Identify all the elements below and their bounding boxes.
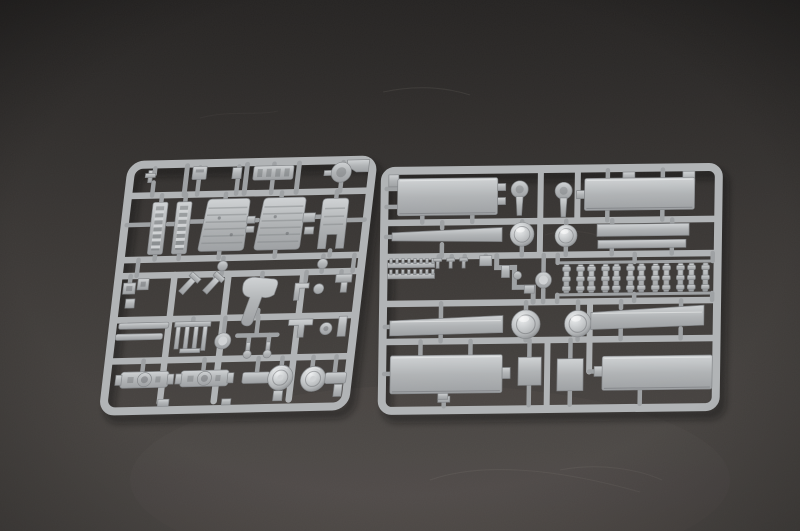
vignette: [0, 0, 800, 531]
sprue-photo-svg: [0, 0, 800, 531]
photo-model-kit-sprues: Two light-gray injection-molded plastic …: [0, 0, 800, 531]
